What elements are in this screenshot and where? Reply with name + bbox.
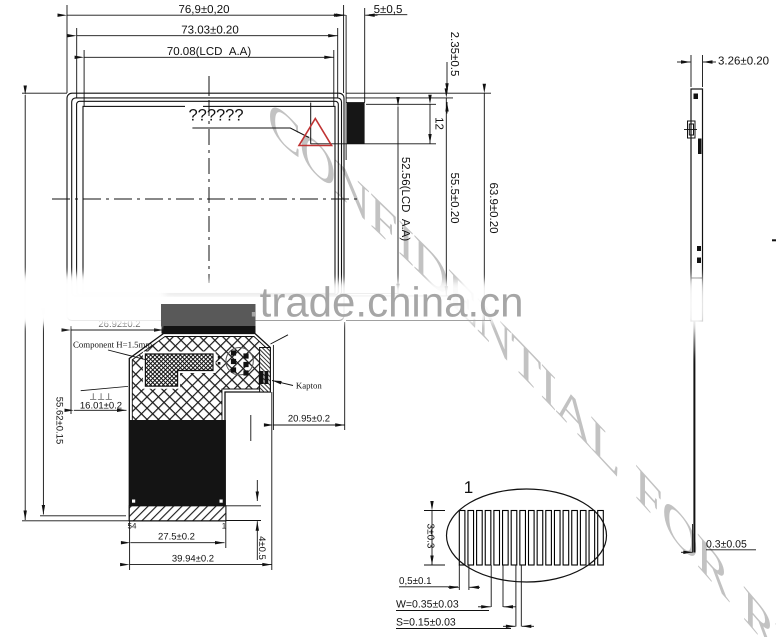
svg-text:39.94±0.2: 39.94±0.2	[172, 554, 214, 565]
svg-text:54: 54	[128, 522, 137, 531]
svg-text:76,9±0,20: 76,9±0,20	[178, 4, 229, 16]
svg-text:Kapton: Kapton	[296, 381, 322, 391]
svg-text:2.35±0.5: 2.35±0.5	[448, 32, 460, 77]
svg-text:.trade.china.cn: .trade.china.cn	[248, 279, 524, 326]
svg-text:55.5±0.20: 55.5±0.20	[448, 172, 460, 223]
svg-text:C: C	[268, 86, 301, 172]
svg-text:55.62±0.15: 55.62±0.15	[54, 397, 65, 444]
svg-text:T: T	[511, 319, 542, 407]
svg-text:N: N	[334, 146, 370, 236]
svg-text:70.08(LCD A.A): 70.08(LCD A.A)	[167, 46, 252, 58]
svg-text:52.56(LCD A.A): 52.56(LCD A.A)	[399, 157, 411, 242]
svg-text:20.95±0.2: 20.95±0.2	[288, 414, 330, 425]
svg-text:1: 1	[464, 478, 473, 497]
svg-text:S=0.15±0.03: S=0.15±0.03	[396, 617, 456, 629]
svg-text:4±0.5: 4±0.5	[256, 536, 267, 560]
svg-text:R: R	[742, 572, 776, 637]
svg-text:F: F	[370, 180, 398, 263]
svg-text:I: I	[540, 350, 557, 423]
svg-text:L: L	[590, 402, 621, 491]
svg-text:F: F	[635, 451, 663, 538]
svg-text:R: R	[696, 520, 730, 615]
svg-text:5±0,5: 5±0,5	[374, 4, 403, 16]
svg-text:12: 12	[433, 117, 445, 130]
svg-text:W=0.35±0.03: W=0.35±0.03	[396, 599, 459, 611]
svg-text:63.9±0.20: 63.9±0.20	[487, 182, 499, 233]
svg-text:??????: ??????	[188, 107, 243, 125]
svg-text:73.03±0.20: 73.03±0.20	[181, 24, 238, 36]
svg-text:3±0.3: 3±0.3	[425, 524, 436, 549]
svg-text:0.3±0.05: 0.3±0.05	[706, 539, 747, 551]
svg-text:A: A	[556, 366, 592, 460]
svg-text:0,5±0.1: 0,5±0.1	[399, 576, 432, 587]
svg-text:O: O	[300, 114, 336, 203]
svg-text:3.26±0.20: 3.26±0.20	[718, 56, 769, 68]
svg-text:Component H=1.5mm: Component H=1.5mm	[73, 340, 152, 350]
svg-text:27.5±0.2: 27.5±0.2	[158, 532, 195, 543]
